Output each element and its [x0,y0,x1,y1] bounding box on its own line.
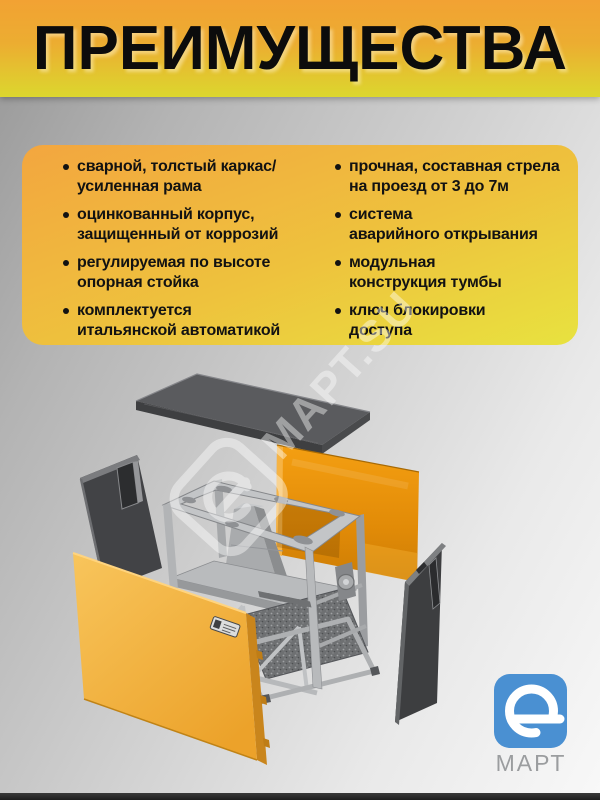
advantage-item: регулируемая по высоте опорная стойка [65,253,300,293]
emart-logo: МАРТ [484,664,594,784]
advantage-item: система аварийного открывания [337,205,578,245]
advantages-right-column: прочная, составная стрела на проезд от 3… [300,157,578,345]
vent-slats [258,591,312,608]
advantage-item: модульная конструкция тумбы [337,253,578,293]
skid-base [233,619,380,704]
front-yellow-panel [73,553,270,765]
advantage-item: оцинкованный корпус, защищенный от корро… [65,205,300,245]
manufacturer-badge [210,616,241,637]
right-side-panel [395,543,446,725]
logo-text: МАРТ [496,750,567,776]
page-title: ПРЕИМУЩЕСТВА [33,13,567,84]
advantages-left-column: сварной, толстый каркас/ усиленная рама … [22,157,300,345]
advantage-item: ключ блокировки доступа [337,301,578,341]
cabinet-frame [163,479,380,704]
logo-square [494,674,567,748]
title-banner: ПРЕИМУЩЕСТВА [0,0,600,97]
advantages-card: сварной, толстый каркас/ усиленная рама … [22,145,578,345]
side-motor [335,562,356,601]
rear-left-side-panel [80,455,162,590]
watermark-e-icon [166,434,292,560]
advantage-item: прочная, составная стрела на проезд от 3… [337,157,578,197]
watermark: МАРТ.SU [0,0,600,800]
lid-panel [136,374,370,454]
motor-unit [215,503,290,596]
bottom-strip [0,793,600,800]
base-platform [240,589,368,679]
logo-e-icon [494,674,567,748]
exploded-view-illustration [0,0,600,800]
poster-page: ПРЕИМУЩЕСТВА сварной, толстый каркас/ ус… [0,0,600,800]
advantage-item: сварной, толстый каркас/ усиленная рама [65,157,300,197]
rear-orange-panel [276,445,419,582]
advantage-item: комплектуется итальянской автоматикой [65,301,300,341]
